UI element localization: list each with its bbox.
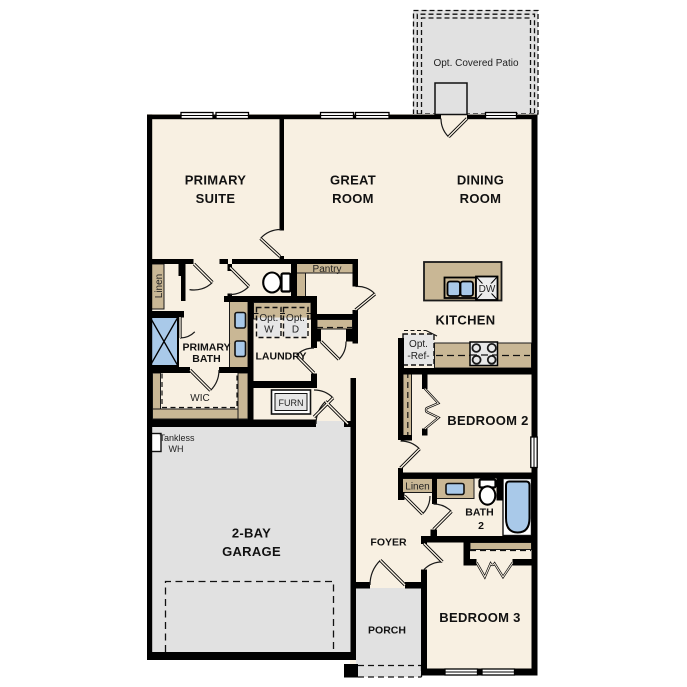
svg-text:DW: DW [479,284,496,295]
svg-text:FURN: FURN [279,398,304,408]
svg-text:ROOM: ROOM [332,191,374,206]
svg-text:2-BAY: 2-BAY [232,526,271,541]
svg-text:Opt.: Opt. [286,313,305,324]
svg-text:PORCH: PORCH [368,625,406,637]
svg-text:WIC: WIC [190,393,209,404]
svg-text:Opt. Covered Patio: Opt. Covered Patio [433,58,518,69]
svg-text:PRIMARY: PRIMARY [185,173,247,188]
svg-text:Pantry: Pantry [313,264,342,275]
svg-text:-Ref-: -Ref- [407,351,429,362]
svg-text:Opt.: Opt. [259,313,278,324]
svg-text:BEDROOM 3: BEDROOM 3 [439,610,520,625]
svg-text:BATH: BATH [465,507,493,519]
svg-text:KITCHEN: KITCHEN [436,313,496,328]
svg-text:BATH: BATH [192,353,220,365]
svg-text:2: 2 [478,520,484,532]
svg-text:Linen: Linen [405,482,429,493]
svg-text:PRIMARY: PRIMARY [182,342,230,354]
svg-text:ROOM: ROOM [460,191,502,206]
svg-text:FOYER: FOYER [370,537,407,549]
svg-text:Tankless: Tankless [159,433,195,443]
svg-text:DINING: DINING [457,173,504,188]
svg-text:Linen: Linen [154,274,165,298]
svg-text:LAUNDRY: LAUNDRY [256,351,307,363]
svg-text:WH: WH [169,444,184,454]
svg-text:Opt.: Opt. [409,339,428,350]
svg-text:BEDROOM 2: BEDROOM 2 [447,413,528,428]
svg-text:GREAT: GREAT [330,173,376,188]
svg-text:GARAGE: GARAGE [222,544,281,559]
svg-text:W: W [264,325,274,336]
svg-text:D: D [292,325,299,336]
svg-text:SUITE: SUITE [196,191,236,206]
